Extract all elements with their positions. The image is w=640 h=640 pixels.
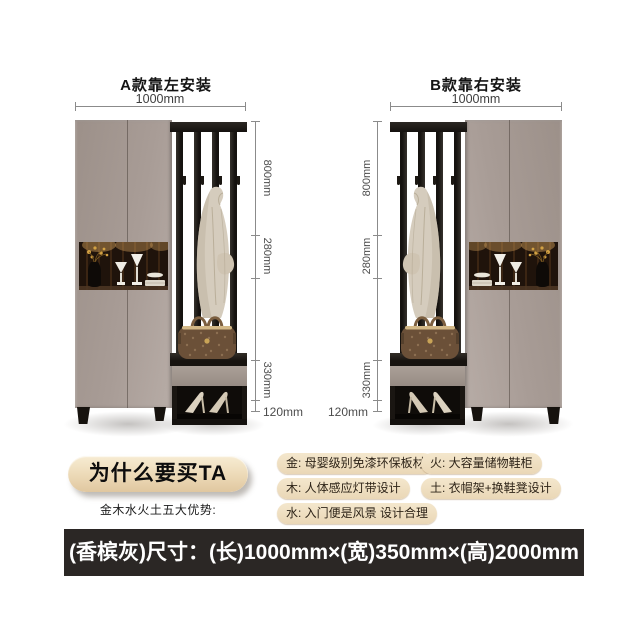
bench-base [172, 419, 247, 425]
feature-badge-shui: 水: 入门便是风景 设计合理 [277, 503, 437, 524]
panel-b-dim-330: 330mm [361, 357, 373, 403]
panel-b-width-label: 1000mm [426, 92, 526, 106]
coat-hook [451, 176, 454, 185]
why-buy-subtitle: 金木水火土五大优势: [68, 501, 248, 518]
panel-a-dim-330: 330mm [261, 357, 273, 403]
panel-a-height-dimension-line [255, 121, 256, 412]
door-seam [509, 120, 510, 242]
panel-b-dim-120: 120mm [320, 406, 368, 419]
display-niche [469, 242, 558, 290]
door-seam [127, 120, 128, 242]
display-niche [79, 242, 168, 290]
handbag-image [175, 309, 239, 361]
product-infographic: A款靠左安装 1000mm [0, 0, 640, 640]
feature-badge-jin: 金: 母婴级别免漆环保板材 [277, 453, 434, 474]
cabinet-b-graphic [390, 115, 562, 430]
shoe-compartment [390, 386, 465, 419]
high-heels-image [395, 386, 460, 419]
coat-hook [237, 176, 240, 185]
panel-a-dim-280: 280mm [261, 233, 273, 279]
feature-badge-tu: 土: 衣帽架+换鞋凳设计 [421, 478, 561, 499]
coat-rack-top-board [390, 122, 467, 132]
bench-body [172, 366, 247, 386]
hanging-garment-image [395, 185, 449, 323]
door-seam [509, 290, 510, 408]
panel-b-dim-280: 280mm [361, 233, 373, 279]
cabinet-body [75, 120, 172, 408]
door-seam [127, 290, 128, 408]
handbag-image [398, 309, 462, 361]
cabinet-a-graphic [75, 115, 247, 430]
panel-b-dim-800: 800mm [361, 155, 373, 201]
feature-badge-huo: 火: 大容量储物鞋柜 [421, 453, 542, 474]
coat-hook [397, 176, 400, 185]
why-buy-pill: 为什么要买TA [68, 456, 248, 492]
feature-badge-mu: 木: 人体感应灯带设计 [277, 478, 410, 499]
coat-hook [433, 176, 436, 185]
panel-b-height-dimension-line [377, 121, 378, 412]
cabinet-body [465, 120, 562, 408]
coat-hook [201, 176, 204, 185]
coat-hook [219, 176, 222, 185]
size-spec-bar: (香槟灰)尺寸：(长)1000mm×(宽)350mm×(高)2000mm [64, 529, 584, 576]
coat-rack-top-board [170, 122, 247, 132]
coat-hook [183, 176, 186, 185]
bench-body [390, 366, 465, 386]
bench-base [390, 419, 465, 425]
coat-hook [415, 176, 418, 185]
shoe-compartment [172, 386, 247, 419]
high-heels-image [177, 386, 242, 419]
panel-a-width-label: 1000mm [110, 92, 210, 106]
hanging-garment-image [188, 185, 242, 323]
panel-a-width-dimension-line [75, 106, 246, 107]
panel-a-dim-120: 120mm [263, 406, 307, 419]
panel-b-width-dimension-line [390, 106, 562, 107]
panel-a-dim-800: 800mm [261, 155, 273, 201]
